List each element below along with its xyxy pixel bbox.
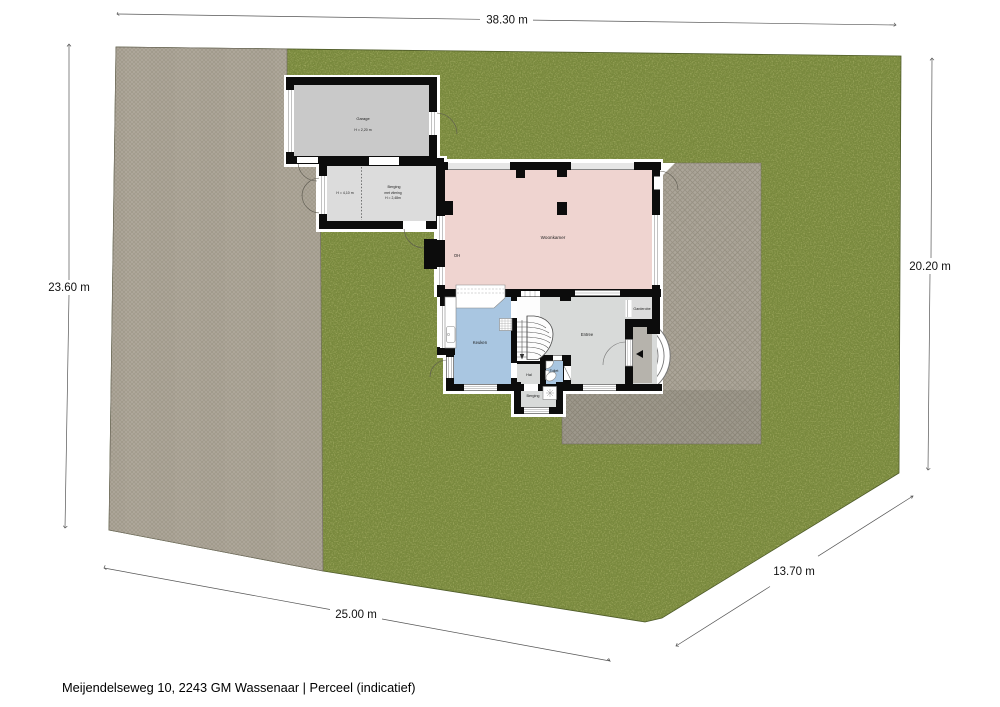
- svg-text:Toilet: Toilet: [550, 369, 560, 373]
- svg-text:Berging: Berging: [387, 185, 400, 189]
- svg-text:Keuken: Keuken: [473, 340, 488, 345]
- svg-text:Woonkamer: Woonkamer: [541, 235, 566, 240]
- svg-text:H = 2,48m: H = 2,48m: [385, 196, 401, 200]
- svg-text:Meijendelseweg 10, 2243 GM Was: Meijendelseweg 10, 2243 GM Wassenaar | P…: [62, 680, 416, 695]
- svg-text:23.60 m: 23.60 m: [48, 282, 90, 294]
- svg-text:Garage: Garage: [356, 116, 370, 121]
- svg-text:H = 2,20 m: H = 2,20 m: [354, 128, 371, 132]
- svg-text:OH: OH: [454, 253, 460, 258]
- svg-text:20.20 m: 20.20 m: [909, 261, 951, 273]
- svg-text:Garderobe: Garderobe: [633, 307, 650, 311]
- svg-text:Berging: Berging: [526, 394, 539, 398]
- svg-text:Entree: Entree: [581, 332, 594, 337]
- svg-text:38.30 m: 38.30 m: [486, 15, 528, 27]
- svg-text:Hal: Hal: [526, 373, 532, 377]
- svg-text:H = 4,10 m: H = 4,10 m: [336, 191, 353, 195]
- svg-text:met vliering: met vliering: [384, 191, 401, 195]
- svg-text:25.00 m: 25.00 m: [335, 609, 377, 621]
- svg-text:13.70 m: 13.70 m: [773, 566, 815, 578]
